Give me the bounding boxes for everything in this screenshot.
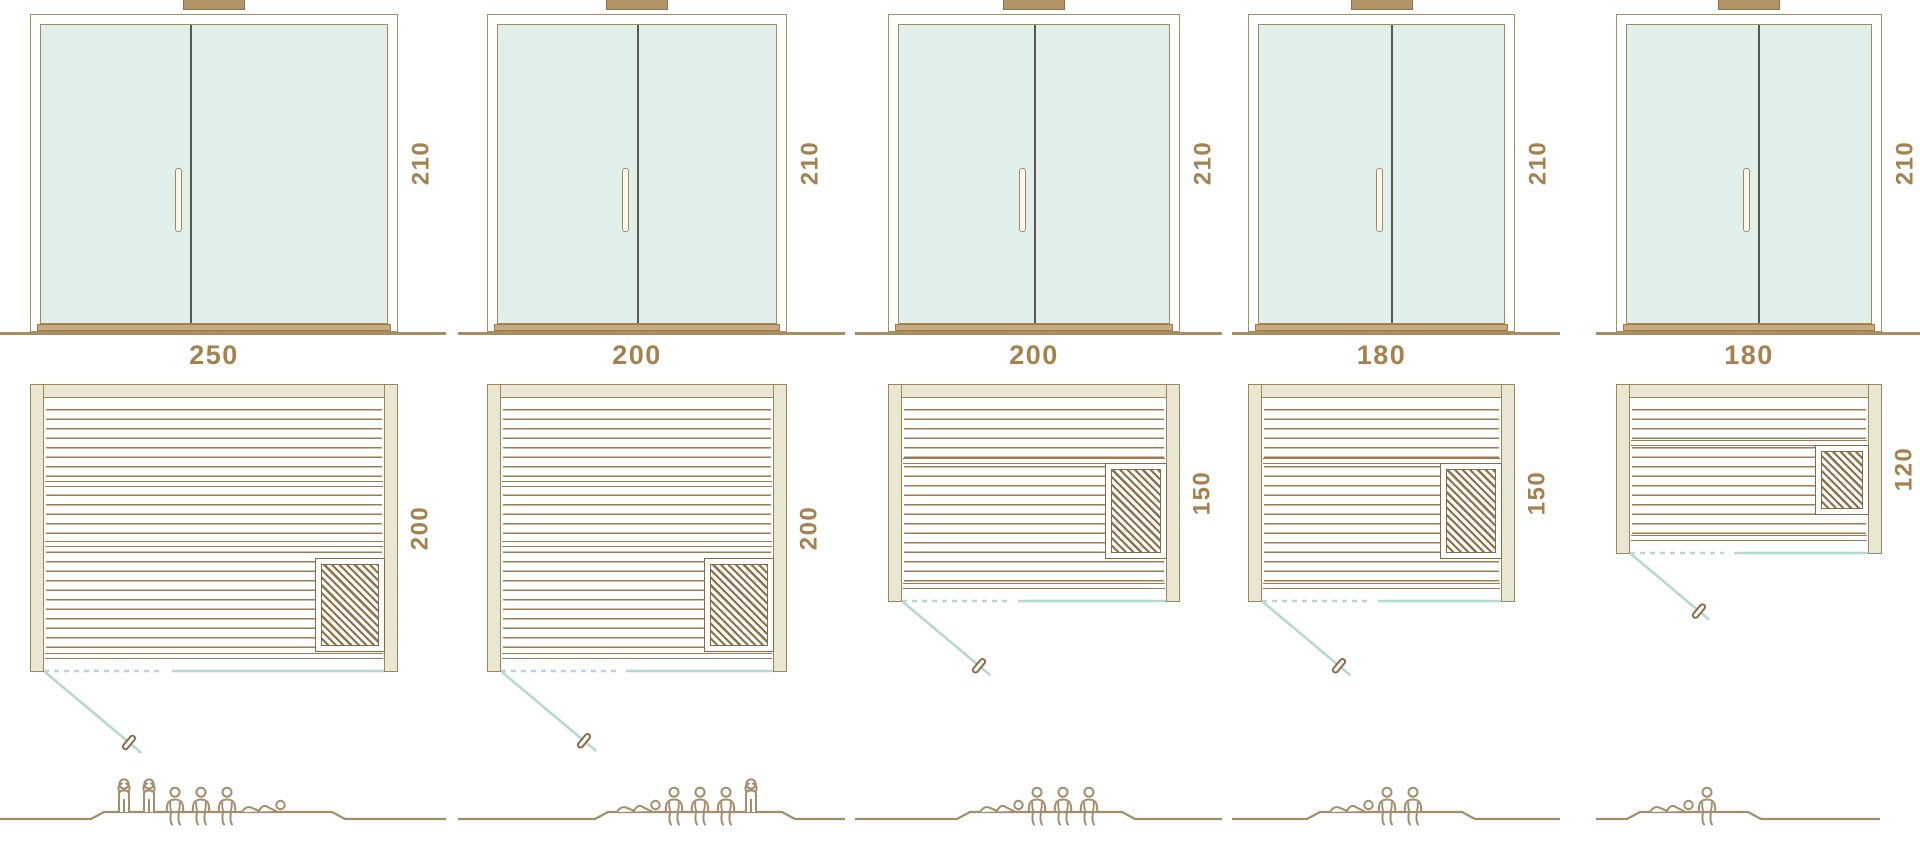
plan-wall-right	[773, 384, 787, 672]
height-dimension-label: 210	[404, 115, 438, 211]
heater-grate	[1446, 469, 1496, 553]
door-swing-diagram	[487, 668, 787, 786]
width-dimension-label: 250	[30, 340, 398, 371]
door-threshold	[37, 324, 391, 331]
heater-grate	[1821, 451, 1863, 509]
plan-wall-top	[1616, 384, 1882, 398]
height-dimension-label: 210	[1186, 115, 1220, 211]
heater-box	[704, 558, 774, 652]
plan-wall-top	[30, 384, 398, 398]
depth-dimension-label: 200	[792, 480, 826, 576]
width-dimension-label: 180	[1248, 340, 1515, 371]
door-elevation	[1616, 14, 1882, 332]
bench-edge-line	[45, 653, 383, 659]
height-dimension-text: 210	[1189, 141, 1217, 186]
glass-panel-left	[41, 25, 192, 323]
heater-grate	[710, 564, 768, 646]
glass-panel-left	[498, 25, 639, 323]
bench-edge-line	[1631, 535, 1867, 541]
person-lying-icon	[1330, 801, 1373, 812]
floor-plan	[30, 384, 398, 672]
plan-wall-top	[1248, 384, 1515, 398]
depth-dimension-text: 200	[795, 506, 823, 551]
bench-edge-line	[502, 653, 772, 659]
bench-edge-line	[45, 481, 383, 487]
height-dimension-text: 210	[407, 141, 435, 186]
door-swing-diagram	[888, 598, 1180, 716]
width-dimension-label: 180	[1616, 340, 1882, 371]
plan-wall-right	[1501, 384, 1515, 602]
bench-edge-line	[1263, 583, 1500, 589]
bench-edge-line	[903, 583, 1165, 589]
bench-edge-line	[502, 481, 772, 487]
person-sitting-icon	[692, 788, 708, 825]
person-sitting-icon	[167, 788, 183, 825]
person-sitting-icon	[1081, 788, 1097, 825]
depth-dimension-label: 200	[403, 480, 437, 576]
person-lying-icon	[1650, 801, 1693, 812]
door-threshold	[895, 324, 1173, 331]
person-sitting-icon	[1379, 788, 1395, 825]
depth-dimension-label: 120	[1887, 421, 1920, 517]
bench-edge-line	[502, 541, 772, 547]
door-handle	[1019, 168, 1026, 232]
door-swing-diagram	[1248, 598, 1515, 716]
plan-wall-right	[1868, 384, 1882, 554]
chimney-vent-icon	[183, 0, 245, 10]
person-sitting-icon	[718, 788, 734, 825]
door-threshold	[1255, 324, 1508, 331]
depth-dimension-text: 120	[1890, 447, 1918, 492]
glass-door-panels	[1626, 24, 1872, 324]
chimney-vent-icon	[1718, 0, 1780, 10]
heater-box	[1815, 445, 1869, 515]
floor-plan	[1248, 384, 1515, 602]
door-swing-diagram	[1616, 550, 1882, 668]
capacity-platform-line	[1232, 812, 1560, 819]
heater-box	[315, 558, 385, 652]
floor-plan	[888, 384, 1180, 602]
glass-door-panels	[40, 24, 388, 324]
door-threshold	[494, 324, 780, 331]
glass-panel-left	[1627, 25, 1760, 323]
height-dimension-text: 210	[1524, 141, 1552, 186]
plan-wall-left	[888, 384, 902, 602]
person-sitting-icon	[1055, 788, 1071, 825]
height-dimension-label: 210	[1888, 115, 1920, 211]
person-lying-icon	[242, 801, 285, 812]
chimney-vent-icon	[1351, 0, 1413, 10]
height-dimension-text: 210	[1891, 141, 1919, 186]
person-sitting-icon	[1405, 788, 1421, 825]
chimney-vent-icon	[606, 0, 668, 10]
sauna-dimensions-diagram: 2102502002102002002102001502101801502101…	[0, 0, 1920, 856]
floor-plan	[487, 384, 787, 672]
person-sitting-icon	[666, 788, 682, 825]
plan-wall-top	[487, 384, 787, 398]
door-elevation	[487, 14, 787, 332]
chimney-vent-icon	[1003, 0, 1065, 10]
plan-wall-right	[1166, 384, 1180, 602]
floor-plan	[1616, 384, 1882, 554]
depth-dimension-label: 150	[1185, 445, 1219, 541]
person-lying-icon	[617, 801, 660, 812]
plan-wall-left	[487, 384, 501, 672]
plan-wall-left	[1616, 384, 1630, 554]
depth-dimension-text: 150	[1523, 471, 1551, 516]
plan-wall-right	[384, 384, 398, 672]
heater-box	[1440, 463, 1502, 559]
ground-line	[855, 332, 1222, 335]
glass-panel-left	[1259, 25, 1393, 323]
door-handle	[1376, 168, 1383, 232]
ground-line	[1596, 332, 1920, 335]
person-lying-icon	[980, 801, 1023, 812]
ground-line	[458, 332, 845, 335]
depth-dimension-label: 150	[1520, 445, 1554, 541]
depth-dimension-text: 150	[1188, 471, 1216, 516]
glass-door-panels	[898, 24, 1170, 324]
plan-wall-top	[888, 384, 1180, 398]
door-elevation	[888, 14, 1180, 332]
door-elevation	[30, 14, 398, 332]
door-swing-diagram	[30, 668, 398, 786]
capacity-platform-line	[855, 812, 1222, 819]
height-dimension-text: 210	[796, 141, 824, 186]
ground-line	[1232, 332, 1560, 335]
bench-edge-line	[45, 541, 383, 547]
ground-line	[0, 332, 446, 335]
door-handle	[175, 168, 182, 232]
door-elevation	[1248, 14, 1515, 332]
person-sitting-icon	[1699, 788, 1715, 825]
capacity-platform-line	[458, 812, 845, 819]
door-threshold	[1623, 324, 1875, 331]
plan-wall-left	[30, 384, 44, 672]
person-sitting-icon	[1029, 788, 1045, 825]
door-handle	[1743, 168, 1750, 232]
heater-grate	[1111, 469, 1161, 553]
heater-grate	[321, 564, 379, 646]
height-dimension-label: 210	[1521, 115, 1555, 211]
person-sitting-icon	[219, 788, 235, 825]
depth-dimension-text: 200	[406, 506, 434, 551]
width-dimension-label: 200	[487, 340, 787, 371]
person-sitting-icon	[193, 788, 209, 825]
width-dimension-label: 200	[888, 340, 1180, 371]
glass-panel-left	[899, 25, 1036, 323]
plan-wall-left	[1248, 384, 1262, 602]
heater-box	[1105, 463, 1167, 559]
glass-door-panels	[1258, 24, 1505, 324]
glass-door-panels	[497, 24, 777, 324]
height-dimension-label: 210	[793, 115, 827, 211]
door-handle	[622, 168, 629, 232]
capacity-platform-line	[1596, 812, 1880, 819]
